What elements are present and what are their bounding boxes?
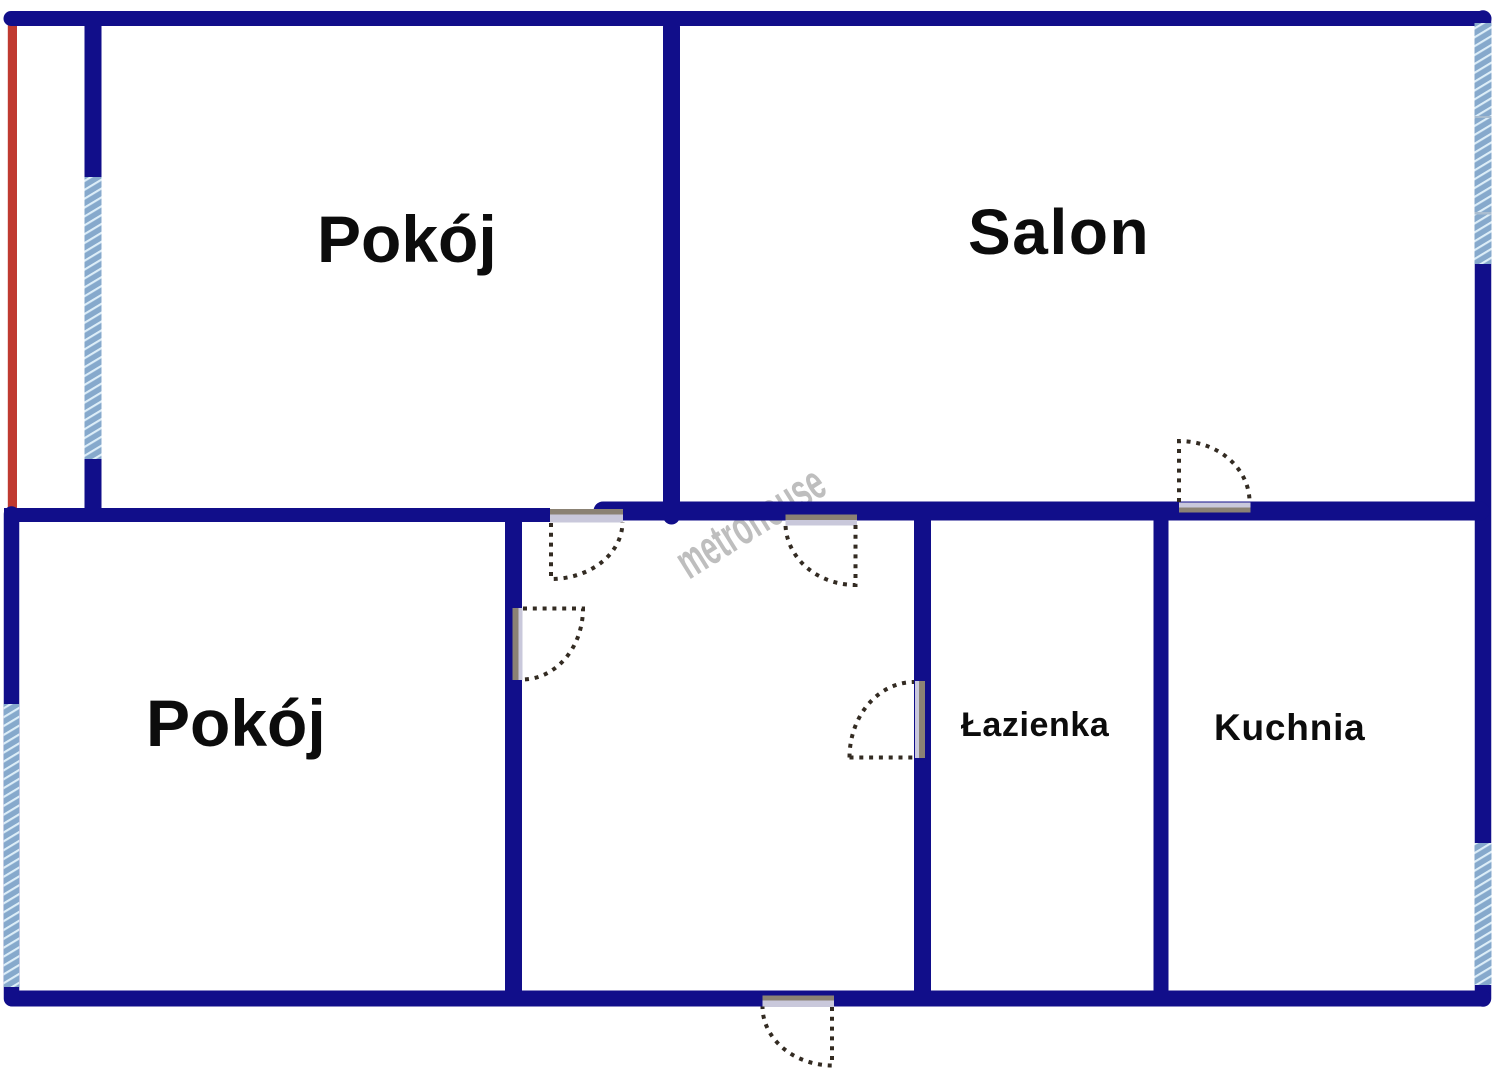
svg-text:Pokój: Pokój (317, 202, 497, 276)
svg-text:Pokój: Pokój (146, 686, 326, 760)
svg-text:Kuchnia: Kuchnia (1214, 707, 1366, 748)
svg-text:Łazienka: Łazienka (961, 706, 1110, 744)
svg-text:Salon: Salon (968, 196, 1150, 268)
